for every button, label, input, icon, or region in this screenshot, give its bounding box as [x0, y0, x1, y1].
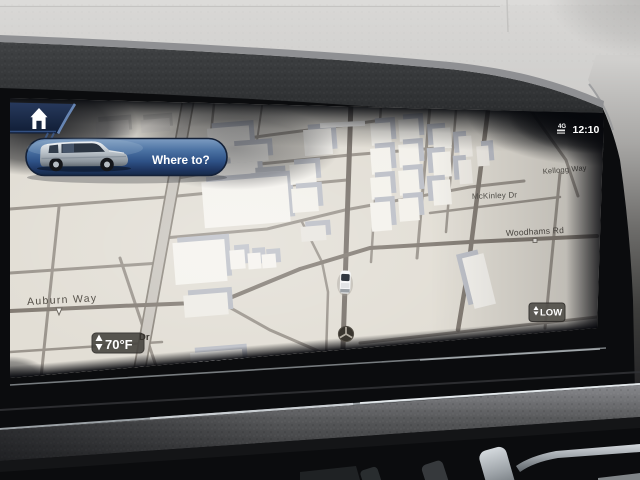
svg-text:70°F: 70°F: [105, 337, 133, 352]
svg-text:Where to?: Where to?: [152, 153, 210, 167]
svg-text:4G: 4G: [558, 124, 566, 130]
svg-text:Dr: Dr: [139, 332, 150, 343]
svg-text:LOW: LOW: [540, 308, 562, 319]
svg-text:12:10: 12:10: [573, 124, 600, 136]
